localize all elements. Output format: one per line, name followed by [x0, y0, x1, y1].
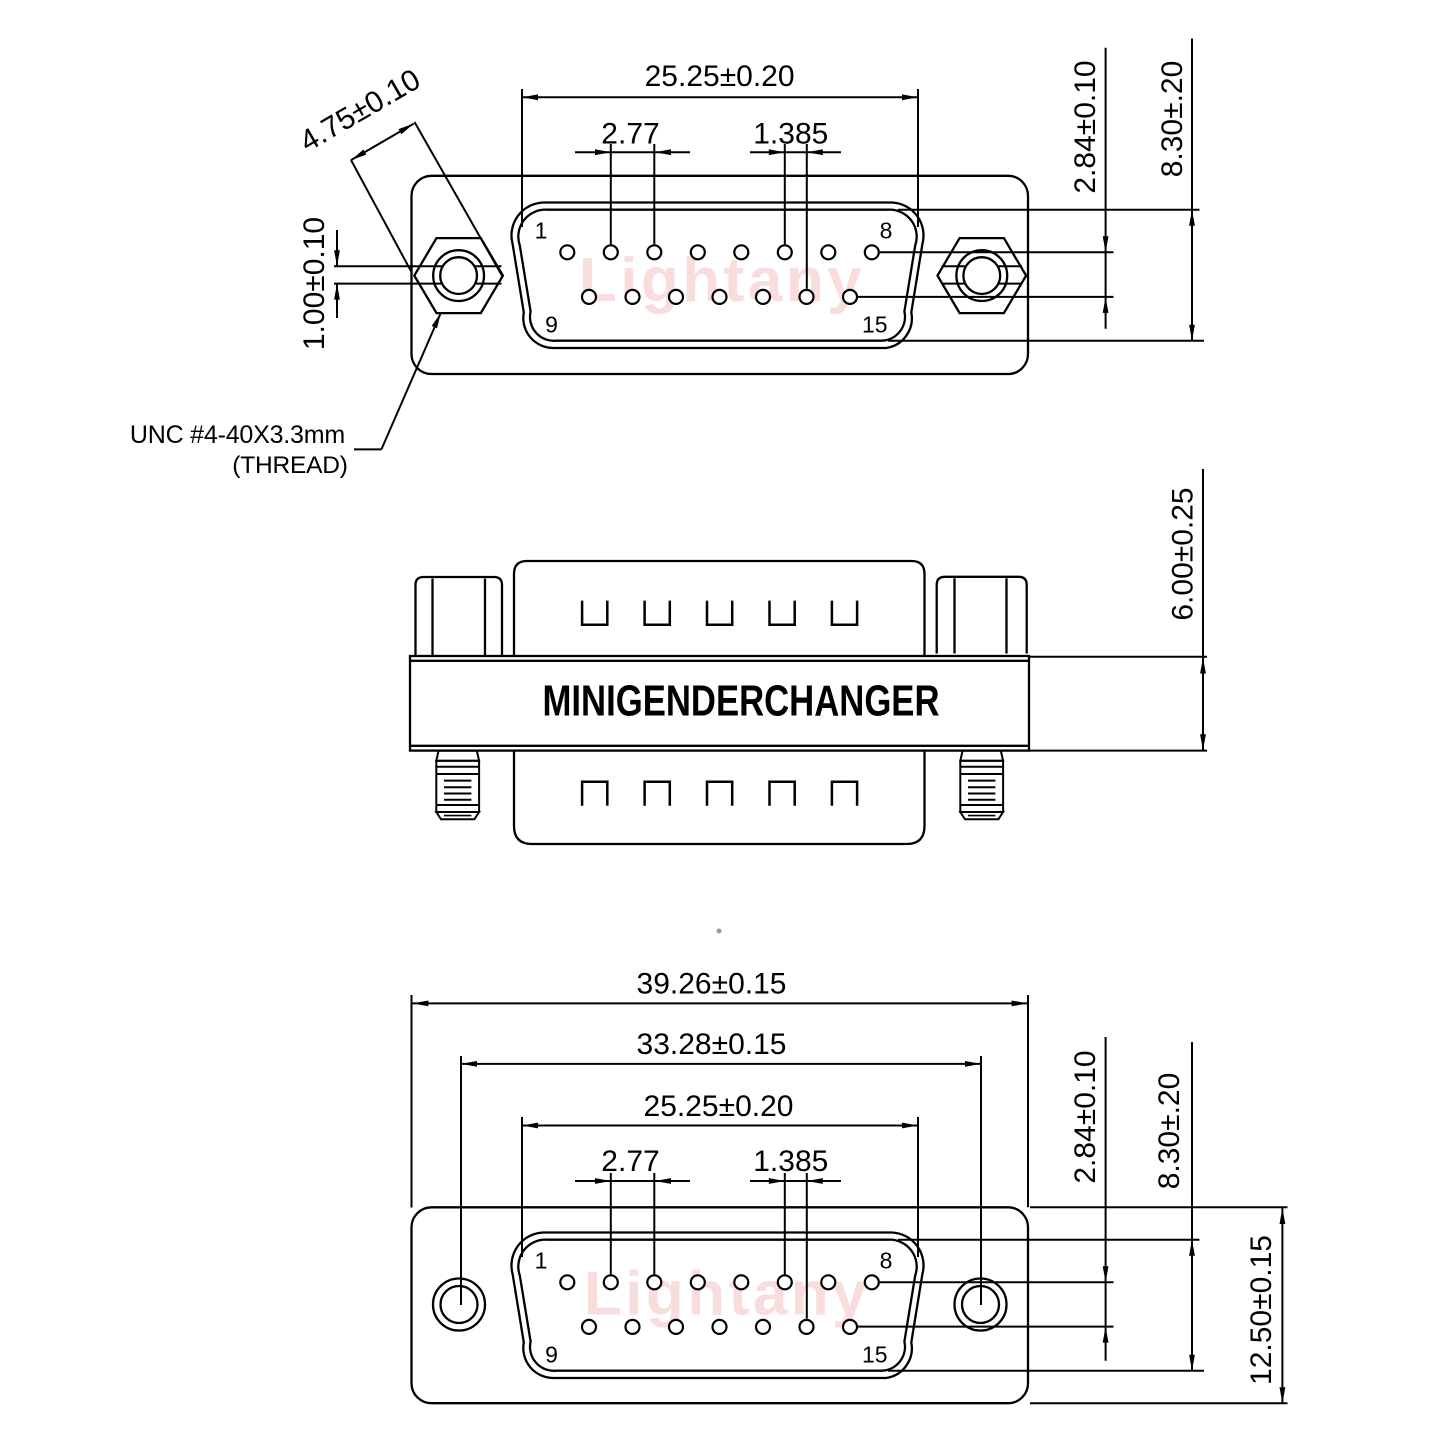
svg-text:9: 9 — [545, 1341, 558, 1367]
svg-text:(THREAD): (THREAD) — [232, 452, 347, 479]
svg-text:8: 8 — [880, 1248, 893, 1274]
svg-text:MINIGENDERCHANGER: MINIGENDERCHANGER — [543, 678, 940, 726]
svg-text:25.25±0.20: 25.25±0.20 — [644, 1090, 794, 1123]
svg-text:6.00±0.25: 6.00±0.25 — [1166, 487, 1199, 620]
svg-text:1.385: 1.385 — [753, 1145, 828, 1178]
svg-text:39.26±0.15: 39.26±0.15 — [637, 967, 787, 1000]
svg-text:8.30±.20: 8.30±.20 — [1156, 61, 1189, 178]
svg-text:1.00±0.10: 1.00±0.10 — [298, 217, 331, 350]
svg-text:25.25±0.20: 25.25±0.20 — [645, 60, 795, 93]
svg-text:15: 15 — [862, 311, 888, 337]
svg-text:15: 15 — [862, 1341, 888, 1367]
svg-text:1: 1 — [535, 1248, 548, 1274]
svg-text:8: 8 — [880, 218, 893, 244]
svg-text:1: 1 — [535, 218, 548, 244]
svg-text:2.84±0.10: 2.84±0.10 — [1069, 60, 1102, 193]
svg-text:1.385: 1.385 — [753, 118, 828, 151]
svg-text:2.84±0.10: 2.84±0.10 — [1069, 1050, 1102, 1183]
svg-text:12.50±0.15: 12.50±0.15 — [1245, 1235, 1278, 1385]
svg-text:8.30±.20: 8.30±.20 — [1153, 1073, 1186, 1190]
svg-text:33.28±0.15: 33.28±0.15 — [637, 1028, 787, 1061]
svg-text:UNC #4-40X3.3mm: UNC #4-40X3.3mm — [130, 421, 345, 449]
svg-text:9: 9 — [545, 311, 558, 337]
svg-text:Lightany: Lightany — [584, 1259, 870, 1328]
